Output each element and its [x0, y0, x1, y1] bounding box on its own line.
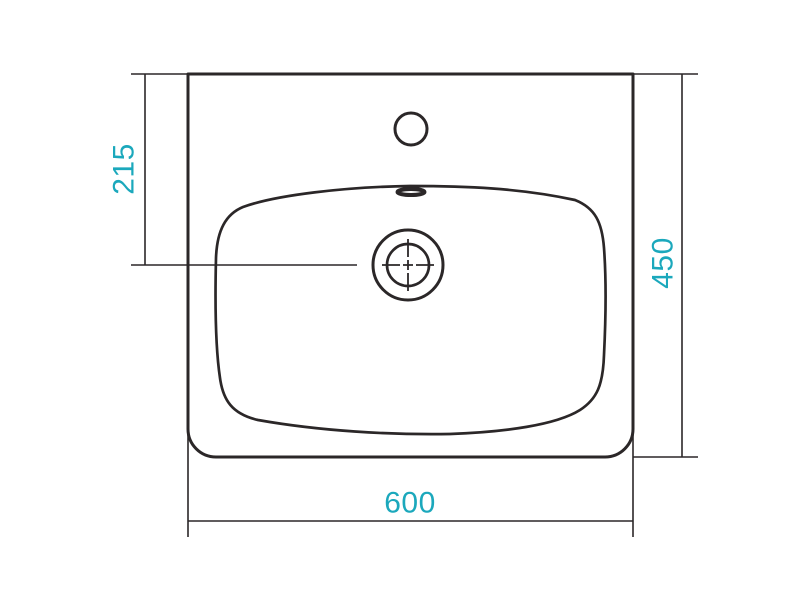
technical-drawing-page: 215 450 600 — [0, 0, 800, 600]
washbasin-dimension-drawing: 215 450 600 — [0, 0, 800, 600]
dimension-label-215: 215 — [108, 143, 141, 195]
drain — [373, 230, 443, 300]
dimension-overall-width: 600 — [188, 428, 633, 537]
overflow-slot — [398, 189, 425, 195]
basin-inner-outline — [215, 186, 605, 434]
dimension-label-450: 450 — [647, 237, 680, 289]
dimension-drain-offset: 215 — [108, 74, 358, 265]
dimension-overall-depth: 450 — [633, 74, 698, 457]
dimension-label-600: 600 — [384, 487, 436, 520]
faucet-hole — [395, 113, 427, 145]
